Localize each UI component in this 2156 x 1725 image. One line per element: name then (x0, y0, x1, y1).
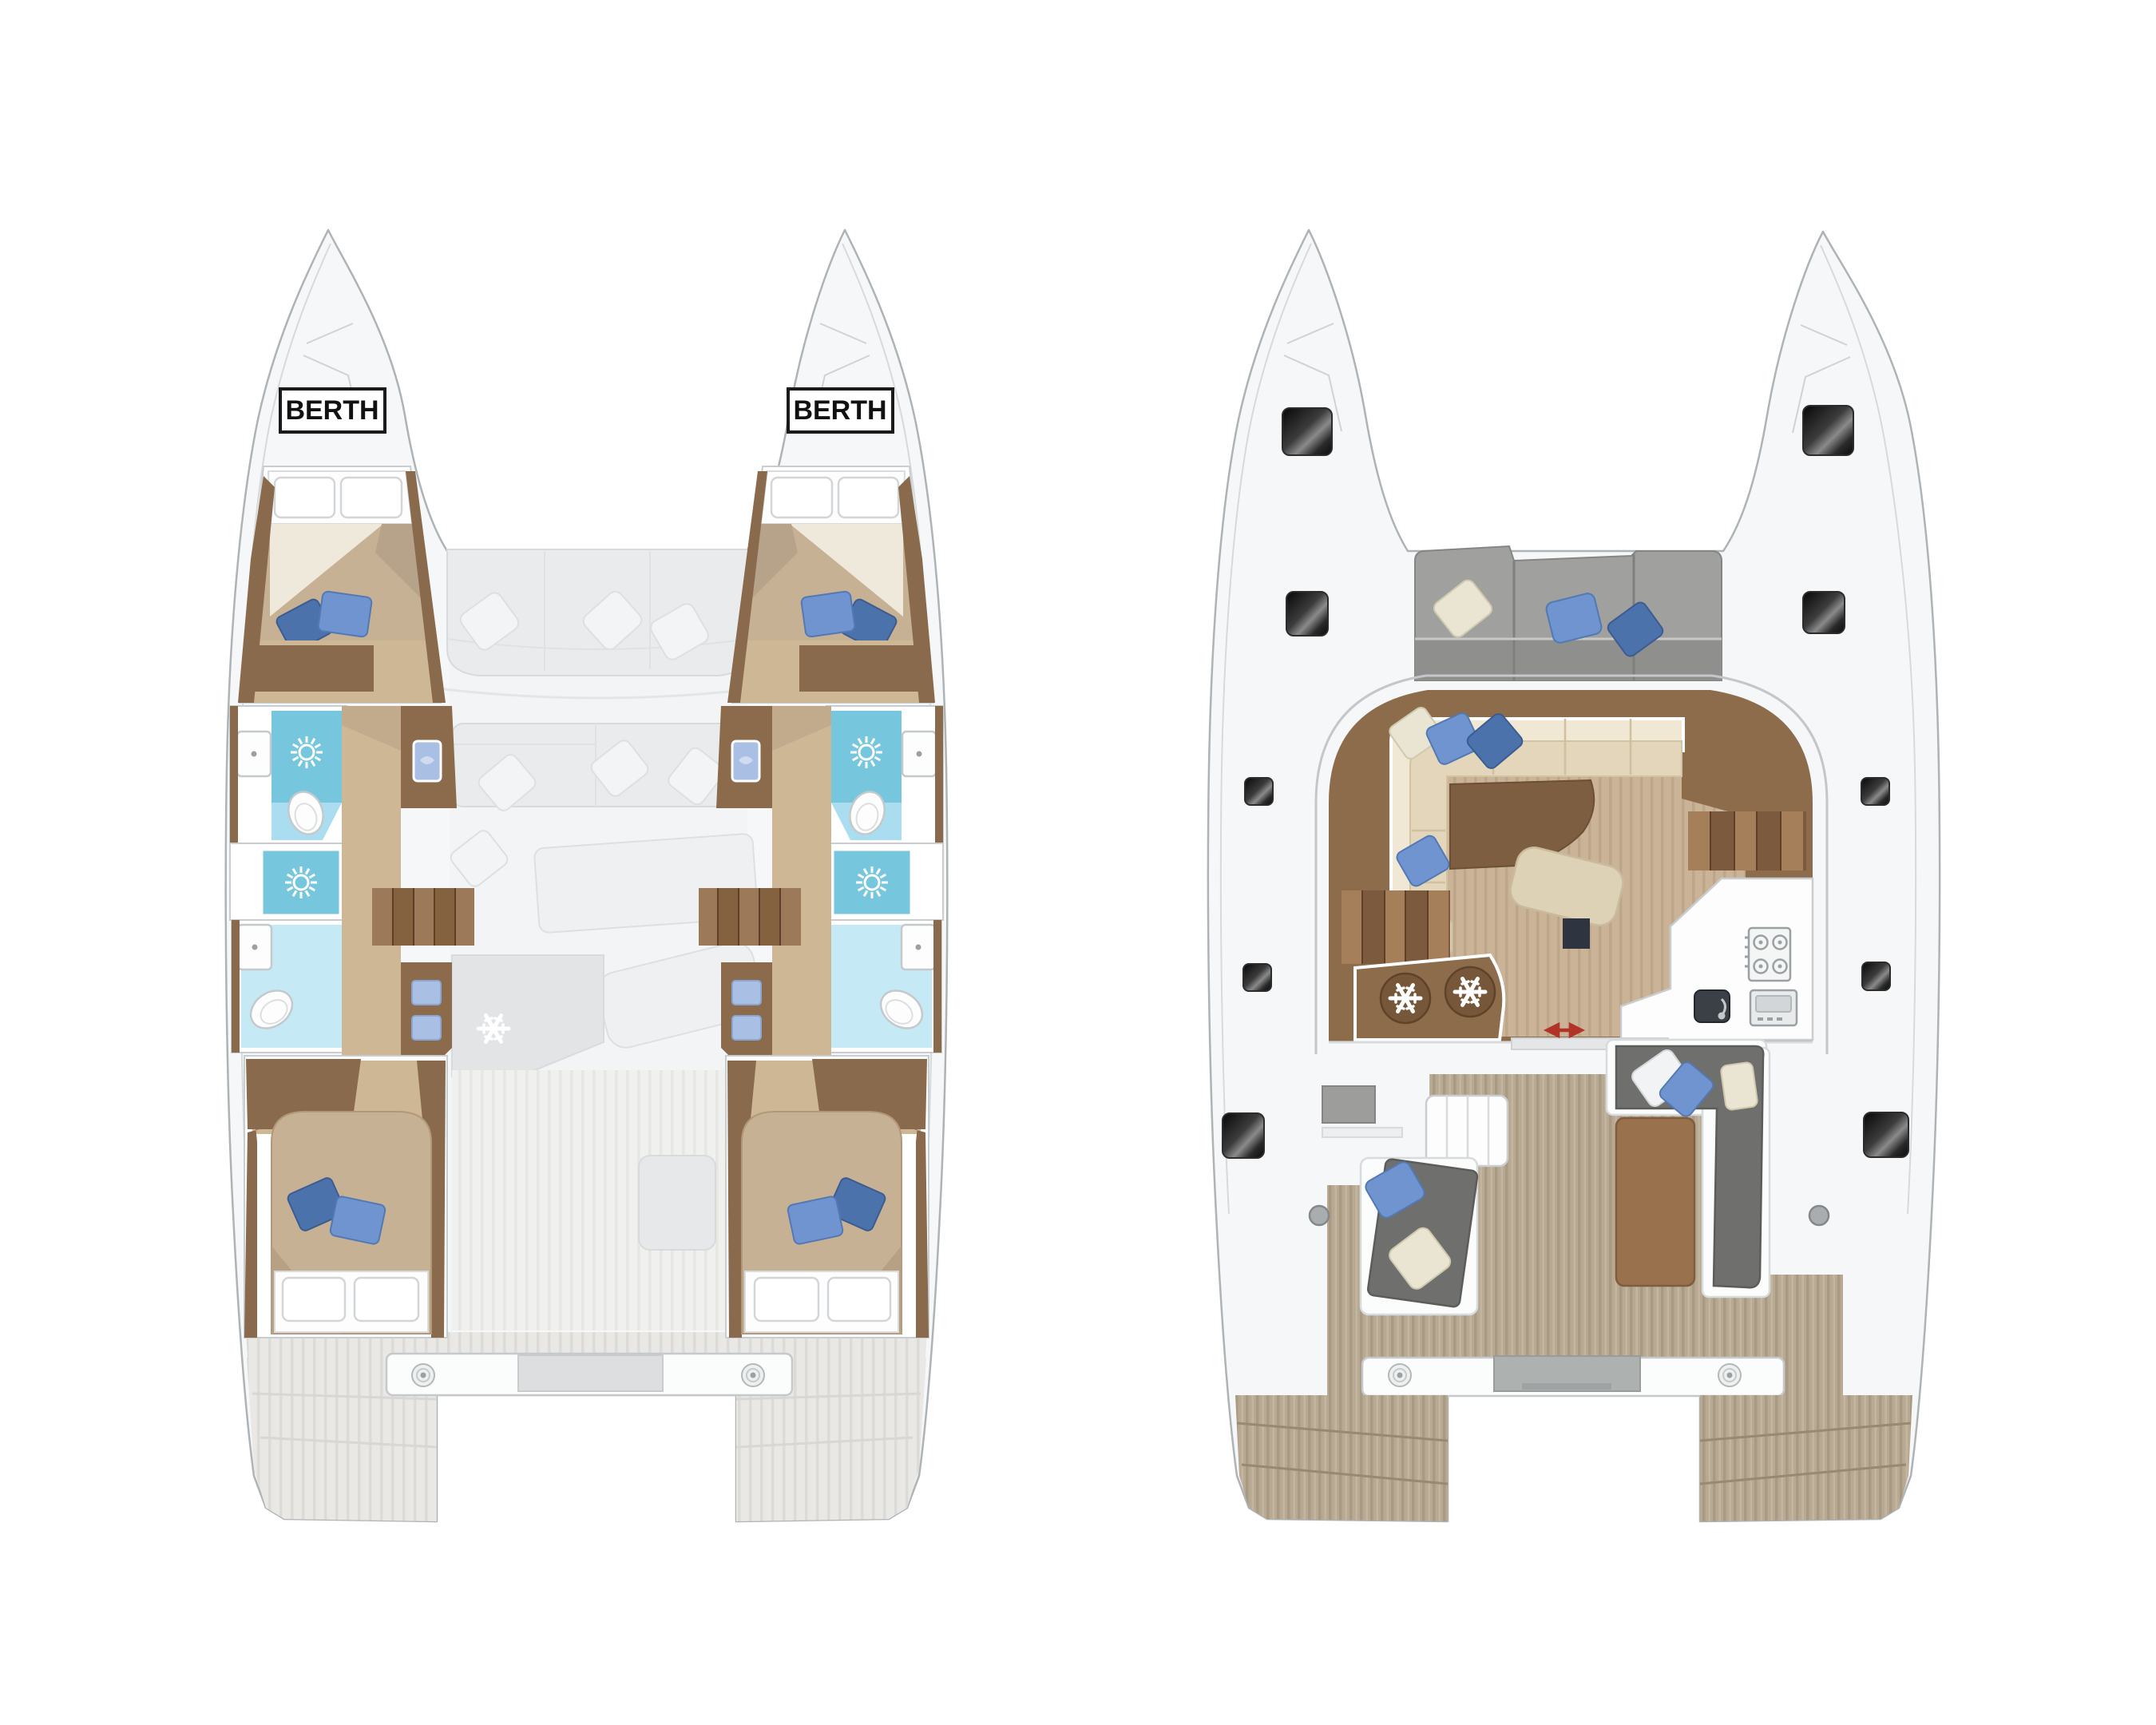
svg-text:BERTH: BERTH (793, 395, 886, 426)
svg-text:BERTH: BERTH (285, 395, 378, 426)
